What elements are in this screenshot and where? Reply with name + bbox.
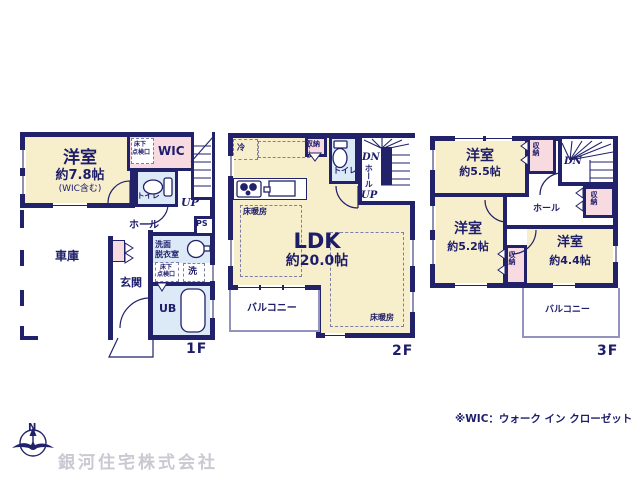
window xyxy=(455,283,487,288)
toilet-label: トイレ xyxy=(333,166,357,175)
floor-label-3f: 3F xyxy=(597,343,618,359)
window xyxy=(410,292,416,312)
room-1f-toilet xyxy=(135,169,178,207)
window xyxy=(430,206,436,230)
shoe-cabinet xyxy=(112,240,125,262)
window xyxy=(486,136,512,141)
garage-label: 車庫 xyxy=(42,250,92,264)
room-size: 約5.5帖 xyxy=(450,166,510,179)
floor-label-2f: 2F xyxy=(392,343,413,359)
room-size: 約4.4帖 xyxy=(540,255,600,268)
storage-label: 収納 xyxy=(508,251,516,265)
wic-note: ※WIC：ウォーク イン クローゼット xyxy=(455,413,632,425)
garage-open-dash xyxy=(20,250,24,266)
underfloor-label: 点検口 xyxy=(132,150,150,157)
ldk-size-label: 約20.0帖 xyxy=(285,253,349,269)
wall xyxy=(20,336,38,340)
washroom-label: 洗面 xyxy=(155,240,171,249)
room-note: (WIC含む) xyxy=(40,184,120,194)
hall-label: ホール xyxy=(533,204,560,214)
counter-space-box xyxy=(258,141,310,158)
wall xyxy=(430,193,529,197)
up-label: UP xyxy=(361,190,377,202)
window xyxy=(613,246,619,262)
wall xyxy=(507,225,618,229)
room-size: 約7.8帖 xyxy=(40,169,120,184)
window xyxy=(325,333,345,338)
storage-label: 収納 xyxy=(590,191,598,205)
hall-label: ホール xyxy=(364,164,373,188)
hall-label: ホール xyxy=(125,220,163,232)
room-2f-toilet xyxy=(329,136,358,184)
wall xyxy=(20,132,25,208)
entrance-porch-outline xyxy=(109,338,153,357)
floorplan-page: 洋室 約7.8帖 (WIC含む) WIC 床下 点検口 トイレ UP ホール 車… xyxy=(0,0,640,480)
toilet-label: トイレ xyxy=(137,192,160,201)
garage-open-dash xyxy=(20,290,24,306)
kitchen-counter xyxy=(233,178,307,200)
dn-label: DN xyxy=(564,156,582,168)
floor-heating-label: 床暖房 xyxy=(243,207,267,216)
ps-label: PS xyxy=(196,219,208,228)
window xyxy=(455,136,483,141)
window xyxy=(210,265,216,281)
washroom-label: 脱衣室 xyxy=(155,250,179,259)
bath-label: UB xyxy=(159,303,176,316)
dn-label: DN xyxy=(362,152,380,164)
up-label: UP xyxy=(181,197,199,210)
window xyxy=(261,285,282,290)
window xyxy=(20,176,26,194)
window xyxy=(410,240,416,266)
storage-label: 収納 xyxy=(306,140,320,148)
window xyxy=(210,300,216,318)
storage-3f-right xyxy=(583,186,615,218)
laundry-label: 洗 xyxy=(188,267,197,277)
underfloor-label: 点検口 xyxy=(157,272,175,279)
room-name: 洋室 xyxy=(40,149,120,169)
balcony-label: バルコニー xyxy=(545,305,590,315)
window xyxy=(238,285,259,290)
window xyxy=(228,240,234,266)
room-name: 洋室 xyxy=(450,148,510,164)
window xyxy=(228,156,234,176)
window xyxy=(53,203,87,208)
garage-open-dash xyxy=(20,210,24,228)
underfloor-label: 床下 xyxy=(134,142,146,149)
genkan-label: 玄関 xyxy=(118,277,144,290)
room-size: 約5.2帖 xyxy=(438,241,498,254)
ldk-label: LDK xyxy=(285,229,349,253)
stairwell-1f xyxy=(191,132,212,200)
window xyxy=(284,285,305,290)
room-name: 洋室 xyxy=(438,221,498,237)
fridge-label: 冷 xyxy=(237,143,245,152)
wall xyxy=(148,282,215,286)
wall xyxy=(148,335,215,340)
window xyxy=(553,283,575,288)
room-name: 洋室 xyxy=(540,236,600,251)
company-name: 銀河住宅株式会社 xyxy=(58,448,218,473)
wic-label: WIC xyxy=(158,145,185,159)
balcony-label: バルコニー xyxy=(247,303,297,315)
floor-label-1f: 1F xyxy=(186,341,207,357)
window xyxy=(430,150,436,170)
storage-label: 収納 xyxy=(532,142,540,156)
compass-n-label: N xyxy=(28,422,36,433)
floor-heating-label: 床暖房 xyxy=(370,313,394,322)
window xyxy=(430,240,436,264)
compass-icon: N xyxy=(12,422,54,456)
window xyxy=(20,150,26,168)
